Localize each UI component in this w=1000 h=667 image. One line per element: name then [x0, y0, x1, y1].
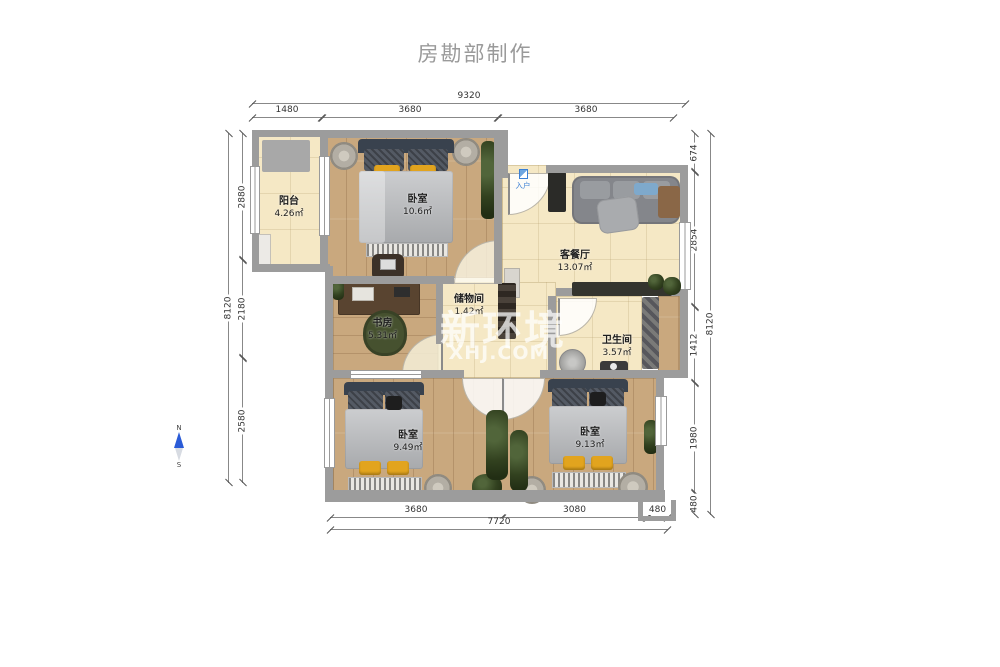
bay-protrusion — [638, 500, 676, 521]
bedroom-bl-window — [324, 398, 335, 468]
room-name: 阳台 — [279, 196, 299, 207]
dim-top-total: 9320 — [252, 103, 686, 104]
dim-left-seg-2: 2180 — [242, 260, 243, 358]
living-side-table — [658, 186, 680, 218]
room-label-storage: 储物间 1.42㎡ — [440, 294, 498, 318]
entry-door-icon — [519, 169, 528, 179]
dim-value: 9320 — [456, 92, 483, 101]
wall-lower-h-1 — [330, 370, 350, 378]
bed-cushion-yellow — [591, 456, 613, 470]
wall-lower-h-2 — [420, 370, 464, 378]
bed-bag — [590, 392, 606, 406]
wall-lower-h-3 — [540, 370, 688, 378]
wall-balcony-top — [252, 130, 326, 137]
sink-basin — [610, 363, 617, 370]
dim-value: 674 — [691, 142, 700, 163]
sofa-throw-blanket — [596, 195, 640, 234]
room-area: 3.57㎡ — [588, 348, 646, 359]
dim-value: 3680 — [397, 106, 424, 115]
room-area: 9.49㎡ — [380, 443, 436, 454]
dim-bottom-seg-1: 3680 — [330, 517, 502, 518]
compass-needle-north-icon — [174, 432, 184, 448]
page-title: 房勘部制作 — [365, 38, 585, 68]
room-name: 卧室 — [398, 430, 418, 441]
study-bottom-window — [350, 370, 422, 379]
room-label-bedroom-bl: 卧室 9.49㎡ — [380, 430, 436, 454]
room-area: 10.6㎡ — [380, 207, 455, 218]
bathroom-side-floor — [658, 296, 680, 376]
wall-balcony-bottom — [252, 264, 330, 272]
dim-value: 7720 — [486, 518, 513, 527]
room-name: 储物间 — [454, 294, 484, 305]
rug-ottoman — [330, 142, 358, 170]
dim-right-seg-3: 1412 — [694, 307, 695, 383]
bed-pillow — [552, 388, 587, 408]
room-name: 卧室 — [408, 194, 428, 205]
dim-right-seg-4: 1980 — [694, 383, 695, 493]
dim-value: 2854 — [691, 226, 700, 253]
room-label-bathroom: 卫生间 3.57㎡ — [588, 335, 646, 359]
wall-top-main — [322, 130, 508, 138]
sofa-blue-cloth — [634, 183, 658, 195]
compass-needle-south-icon — [175, 448, 183, 461]
storage-shelf — [498, 283, 516, 339]
dim-value: 2580 — [239, 407, 248, 434]
study-monitor — [394, 287, 410, 297]
dim-right-seg-1: 674 — [694, 133, 695, 172]
dim-top-seg-3: 3680 — [498, 117, 674, 118]
dim-left-seg-1: 2880 — [242, 133, 243, 260]
dim-top-seg-2: 3680 — [322, 117, 498, 118]
dim-value: 3080 — [561, 506, 588, 515]
wall-bedroom-living-divider — [494, 138, 502, 284]
wall-bathroom-left — [548, 296, 556, 378]
dim-value: 480 — [691, 493, 700, 514]
bed-cushion-yellow — [387, 461, 409, 475]
dim-value: 3680 — [573, 106, 600, 115]
compass-north-label: N — [170, 424, 188, 432]
dim-left-seg-3: 2580 — [242, 358, 243, 483]
room-area: 9.13㎡ — [562, 440, 618, 451]
room-name: 书房 — [373, 318, 393, 329]
wall-living-top — [546, 165, 688, 173]
living-right-window — [679, 222, 691, 290]
dim-bottom-seg-2: 3080 — [502, 517, 647, 518]
living-plant — [648, 274, 664, 290]
dim-value: 1480 — [274, 106, 301, 115]
room-area: 1.42㎡ — [440, 307, 498, 318]
dim-top-seg-1: 1480 — [252, 117, 322, 118]
room-name: 客餐厅 — [560, 250, 590, 261]
room-name: 卧室 — [580, 427, 600, 438]
room-label-balcony: 阳台 4.26㎡ — [252, 196, 326, 220]
compass: N S — [170, 424, 188, 476]
dim-right-seg-2: 2854 — [694, 172, 695, 307]
room-area: 13.07㎡ — [535, 263, 615, 274]
bedroom-top-laptop — [380, 259, 396, 270]
study-papers — [352, 287, 374, 301]
dim-right-total: 8120 — [710, 133, 711, 515]
dim-left-total: 8120 — [228, 133, 229, 483]
rug-ottoman — [452, 138, 480, 166]
dim-value: 2880 — [239, 183, 248, 210]
bedroom-br-window — [655, 396, 667, 446]
bed-end-bench — [552, 472, 626, 488]
corridor-tall-plant — [510, 430, 528, 492]
dim-bottom-total: 7720 — [330, 529, 668, 530]
bed-bag — [386, 396, 402, 410]
dim-value: 8120 — [225, 295, 234, 322]
room-label-bedroom-top: 卧室 10.6㎡ — [380, 194, 455, 218]
room-label-living: 客餐厅 13.07㎡ — [535, 250, 615, 274]
room-area: 5.31㎡ — [350, 331, 415, 342]
room-label-bedroom-br: 卧室 9.13㎡ — [562, 427, 618, 451]
dim-right-seg-5: 480 — [694, 493, 695, 515]
sofa-cushion — [580, 181, 610, 199]
room-name: 卫生间 — [602, 335, 632, 346]
dim-value: 8120 — [707, 311, 716, 338]
dim-value: 1980 — [691, 425, 700, 452]
compass-south-label: S — [170, 461, 188, 469]
corridor-tall-plant — [486, 410, 508, 480]
living-plant — [663, 277, 681, 295]
room-area: 4.26㎡ — [252, 209, 326, 220]
dim-value: 2180 — [239, 296, 248, 323]
bed-pillow — [348, 391, 383, 411]
shoe-cabinet — [548, 172, 566, 212]
wall-bottom-main — [325, 490, 665, 502]
entry-label: 入户 — [509, 180, 537, 191]
bed-cushion-yellow — [359, 461, 381, 475]
room-label-study: 书房 5.31㎡ — [350, 318, 415, 342]
dim-value: 1412 — [691, 332, 700, 359]
wall-mid-horizontal — [330, 276, 454, 284]
dim-value: 3680 — [403, 506, 430, 515]
bed-cushion-yellow — [563, 456, 585, 470]
balcony-mat — [262, 140, 310, 172]
